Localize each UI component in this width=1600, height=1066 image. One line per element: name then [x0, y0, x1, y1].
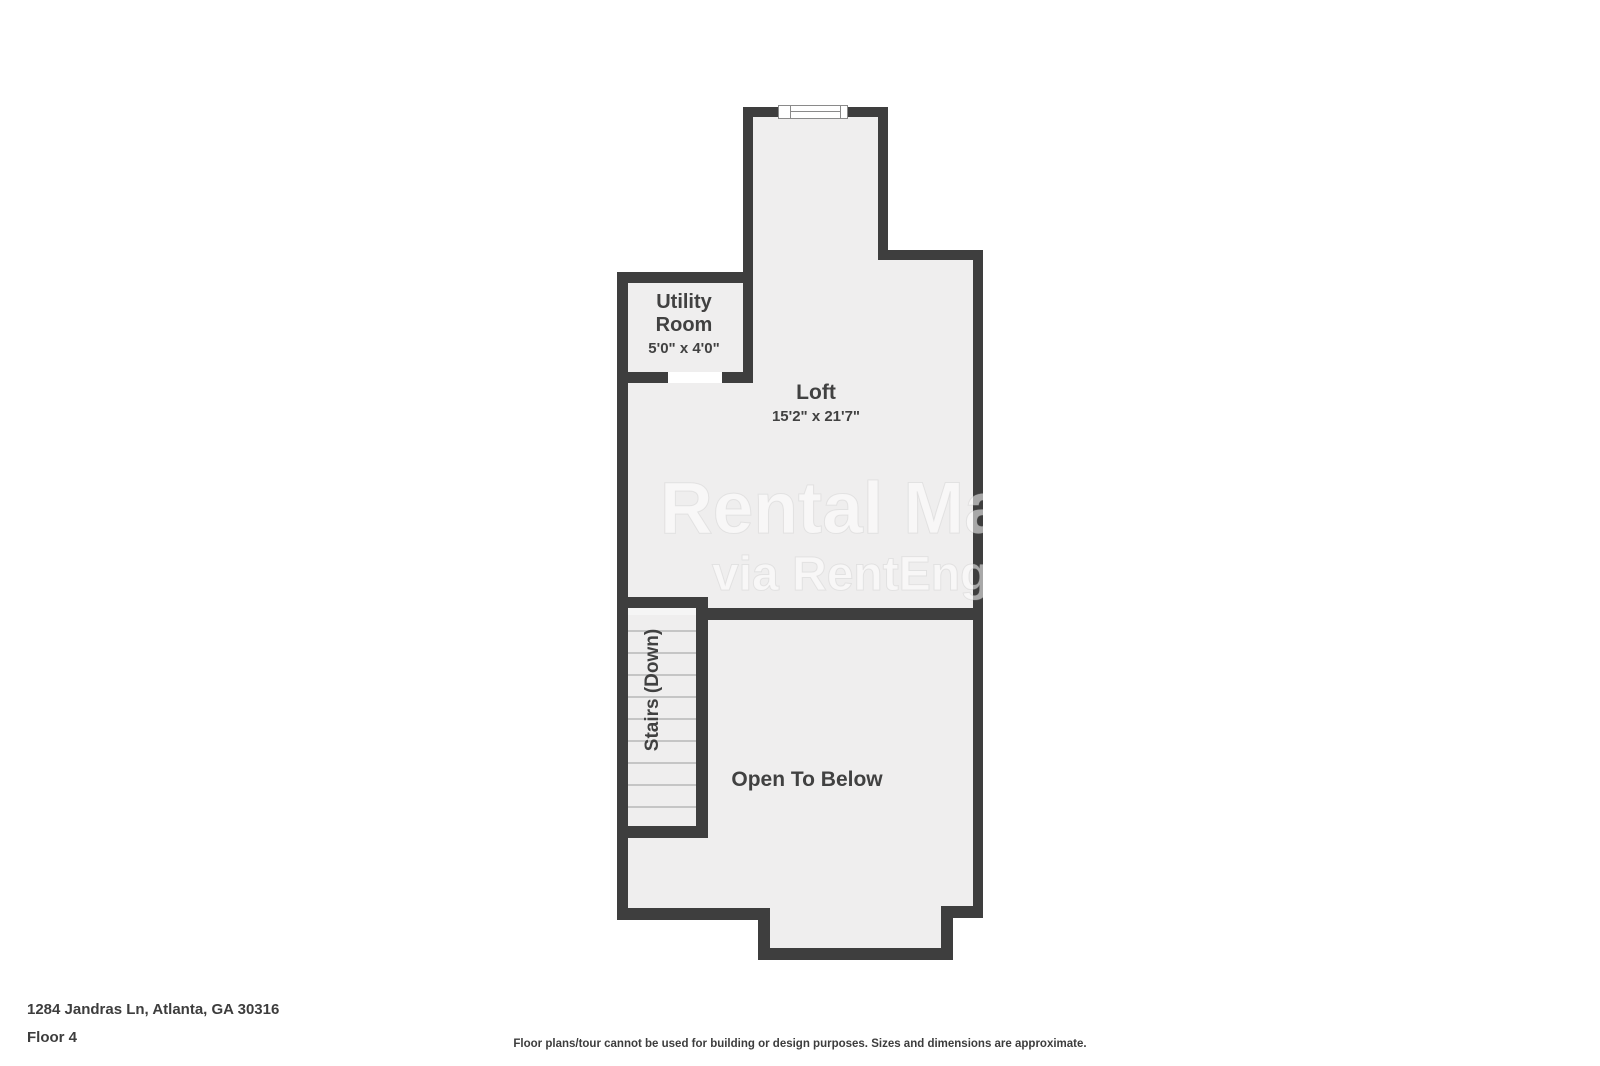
wall-stairs-bottom: [617, 826, 708, 838]
stair-tread-line: [628, 762, 696, 764]
wall-stairs-right: [696, 597, 708, 838]
wall-right-step-top: [878, 250, 983, 260]
stair-tread-line: [628, 806, 696, 808]
wall-right: [973, 250, 983, 918]
stairs-label: Stairs (Down): [642, 629, 664, 751]
disclaimer-text: Floor plans/tour cannot be used for buil…: [0, 1038, 1600, 1050]
floor-open-to-below: [622, 615, 978, 913]
stair-tread-line: [628, 784, 696, 786]
wall-utility-bottom-left: [617, 372, 668, 383]
window-divider: [840, 106, 841, 118]
wall-bottom-left: [617, 908, 770, 920]
room-dimensions: 5'0" x 4'0": [629, 340, 739, 358]
room-dimensions: 15'2" x 21'7": [716, 408, 916, 426]
utility-room-label: Utility Room 5'0" x 4'0": [629, 291, 739, 358]
floor-plan: Utility Room 5'0" x 4'0" Loft 15'2" x 21…: [0, 0, 1600, 1066]
floor-tower: [748, 112, 883, 387]
window-pane-line: [791, 111, 840, 112]
floor-right-wing: [873, 255, 978, 387]
open-to-below-label: Open To Below: [731, 768, 882, 792]
wall-utility-top: [617, 272, 753, 283]
property-address: 1284 Jandras Ln, Atlanta, GA 30316: [27, 1001, 279, 1018]
window-icon: [778, 105, 848, 119]
window-divider: [790, 106, 791, 118]
wall-tower-right: [878, 107, 888, 260]
wall-stairs-cap: [617, 597, 708, 608]
wall-bottom-right-step: [941, 906, 983, 918]
wall-tower-left: [743, 107, 753, 383]
room-name: Loft: [716, 381, 916, 405]
wall-left: [617, 272, 628, 920]
room-name: Utility Room: [629, 291, 739, 337]
wall-loft-divider: [696, 608, 983, 620]
floorplan-page: Utility Room 5'0" x 4'0" Loft 15'2" x 21…: [0, 0, 1600, 1066]
wall-bottom: [758, 948, 953, 960]
loft-label: Loft 15'2" x 21'7": [716, 381, 916, 426]
